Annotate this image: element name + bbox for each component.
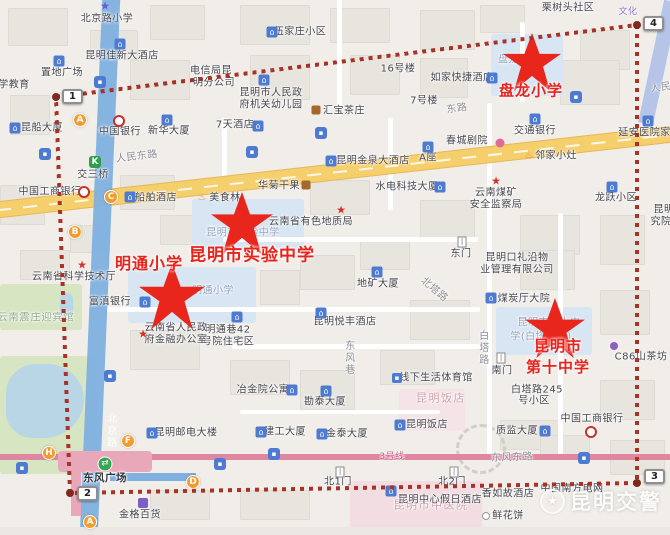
poi-label: 东风巷 [342, 340, 354, 376]
hotel-icon: ⌂ [316, 308, 327, 319]
gate-icon: | [336, 467, 345, 478]
sport-icon: ▪ [392, 373, 402, 383]
street [232, 344, 487, 349]
poi-label: 白塔路245 [511, 384, 563, 396]
street [337, 0, 342, 116]
boundary-marker-4[interactable]: 4 [643, 16, 664, 31]
building-icon: ⌂ [540, 426, 551, 437]
poi-label: 人民东路 [115, 149, 158, 166]
bus-stop-icon[interactable]: ▪ [16, 462, 28, 474]
building-block [520, 215, 580, 255]
poi-label: 昆明市人民政 [240, 87, 303, 99]
street [240, 410, 440, 414]
poi-label: 富滇银行 [89, 296, 131, 308]
station-exit-icon[interactable]: F [121, 434, 135, 448]
poi-label: 明通巷42 [205, 324, 250, 336]
school-name-label: 昆明市第十中学 [526, 335, 590, 377]
building-block [560, 60, 620, 105]
building-icon: ⌂ [10, 123, 21, 134]
poi-label: 3号线 [379, 452, 404, 462]
poi-label: 伍家庄小区 [274, 26, 327, 38]
boundary-marker-3[interactable]: 3 [644, 469, 665, 484]
hotel-icon: ⌂ [487, 73, 498, 84]
boundary-corner-dot [633, 21, 641, 29]
poi-label: 延安医院家属区 [618, 127, 670, 139]
poi-label: 东门 [451, 248, 472, 260]
poi-label: 昆明邮电大楼 [155, 427, 218, 439]
bus-stop-icon[interactable]: ▪ [39, 148, 51, 160]
map-canvas[interactable]: ★ 昆明交警 北京路小学栗树头社区伍家庄小区昆明佳新大酒店置地广场电信局昆明分公… [0, 0, 670, 535]
metro-icon [585, 426, 597, 438]
poi-label: 东风广场 [83, 472, 127, 484]
basket-icon [302, 181, 311, 190]
poi-label: 香如故酒店 [482, 488, 535, 500]
poi-label: 建工大厦 [264, 426, 306, 438]
bag-icon [138, 498, 148, 508]
building-icon: ⌂ [147, 428, 158, 439]
poi-label: 云南煤矿 [475, 187, 517, 199]
poi-label: 昆明口礼沿物 [486, 252, 549, 264]
bus-stop-icon[interactable]: ▪ [246, 146, 258, 158]
building-icon: ⌂ [321, 386, 332, 397]
poi-label: 船舶酒店 [135, 192, 177, 204]
poi-label: C86山茶坊 [615, 351, 668, 363]
poi-label: 金格百货 [119, 509, 161, 521]
poi-label: 美食林 [209, 192, 241, 204]
building-block [150, 5, 205, 40]
bus-stop-icon[interactable]: ▪ [94, 76, 106, 88]
poi-label: 北京路小学 [81, 13, 134, 25]
building-icon: ⌂ [607, 182, 618, 193]
school-name-label: 昆明市实验中学 [189, 241, 315, 266]
poi-label: 汇宝茶庄 [323, 105, 365, 117]
building-block [260, 270, 300, 305]
hotel-icon: ⌂ [326, 156, 337, 167]
building-icon: ⌂ [530, 114, 541, 125]
poi-label: 龙跃小区 [595, 192, 637, 204]
station-exit-icon[interactable]: A [73, 113, 87, 127]
poi-label: 新华大厦 [148, 125, 190, 137]
poi-label: 地矿大厦 [357, 278, 399, 290]
hotel-icon: ⌂ [253, 121, 264, 132]
poi-label: 水电科技大厦 [376, 181, 439, 193]
watermark-text: 昆明交警 [570, 486, 662, 516]
building-icon: ⌂ [140, 297, 151, 308]
hotel-icon: ⌂ [395, 420, 406, 431]
building-block [480, 5, 525, 33]
school-icon: ★ [100, 1, 110, 12]
poi-label: 东风东路 [491, 452, 533, 465]
station-exit-icon[interactable]: D [186, 475, 200, 489]
map-edge-strip [0, 527, 670, 535]
building-icon: ⌂ [162, 115, 173, 126]
poi-label: 7号楼 [410, 95, 438, 107]
poi-label: A座 [419, 152, 437, 164]
poi-label: 云南省科学技术厅 [32, 271, 116, 283]
boundary-marker-1[interactable]: 1 [62, 89, 83, 104]
poi-label: 学教育 [0, 79, 30, 91]
building-icon: ⌂ [317, 429, 328, 440]
hotel-icon: ⌂ [115, 39, 126, 50]
poi-label: 中国工商银行 [561, 413, 624, 425]
building-block [8, 8, 68, 46]
poi-label: 号院住宅区 [202, 336, 255, 348]
poi-label: 煤炭厅大院 [498, 293, 551, 305]
boundary-corner-dot [66, 489, 74, 497]
ring-icon [482, 512, 490, 520]
building-icon: ⌂ [435, 182, 446, 193]
building-block [410, 300, 470, 340]
building-icon: ⌂ [423, 142, 434, 153]
star-icon: ★ [336, 205, 346, 216]
boundary-dash-line [635, 25, 639, 483]
building-icon: ⌂ [259, 75, 270, 86]
poi-label: 华菊干果 [258, 180, 300, 192]
poi-label: 云南省有色地质局 [269, 216, 353, 228]
poi-label: 如家快捷酒店 [431, 72, 494, 84]
poi-label: 冶金院公寓 [237, 384, 290, 396]
poi-label: 春城剧院 [446, 135, 488, 147]
school-name-label: 盘龙小学 [499, 80, 563, 101]
poi-label: 16号楼 [381, 63, 416, 75]
bus-stop-icon[interactable]: ▪ [570, 91, 582, 103]
bank-icon [113, 115, 125, 127]
bus-stop-icon[interactable]: ▪ [268, 448, 280, 460]
building-icon: ⌂ [232, 312, 243, 323]
poi-label: 交通银行 [514, 125, 556, 137]
star-icon: ★ [491, 176, 501, 187]
poi-label: 栗树头社区 [542, 2, 595, 14]
building-icon: ⌂ [643, 116, 654, 127]
poi-label: 安全监察局 [470, 199, 523, 211]
poi-label: 勘泰大厦 [304, 396, 346, 408]
poi-label: 昆明饭店 [406, 419, 448, 431]
bus-stop-icon[interactable]: ▪ [578, 452, 590, 464]
poi-label: 邻家小灶 [535, 150, 577, 162]
poi-label: 府金融办公室 [145, 334, 208, 346]
tea-icon [312, 106, 321, 115]
bus-stop-icon[interactable]: ▪ [214, 458, 226, 470]
station-exit-icon[interactable]: B [68, 225, 82, 239]
poi-label: 鲜花饼 [492, 510, 524, 522]
building-icon: ⌂ [287, 385, 298, 396]
poi-label: 人民 [650, 81, 670, 95]
poi-label: 南门 [492, 365, 513, 377]
poi-label: 府机关幼儿园 [240, 99, 303, 111]
poi-label: 交三桥 [77, 169, 109, 181]
building-icon: ⌂ [54, 56, 65, 67]
poi-label: 北京路 [104, 413, 116, 449]
station-exit-icon[interactable]: A [83, 515, 97, 529]
building-icon: ⌂ [486, 293, 497, 304]
poi-label: 质监大厦 [496, 425, 538, 437]
poi-label: 中国银行 [99, 126, 141, 138]
station-exit-icon[interactable]: H [42, 446, 56, 460]
restaurant-icon: ♨ [525, 151, 534, 161]
transfer-icon: ⇄ [98, 457, 113, 472]
poi-label: 昆明金泉大酒店 [336, 155, 410, 167]
poi-label: 昆明 [654, 204, 670, 216]
boundary-marker-2[interactable]: 2 [77, 486, 98, 501]
building-icon: ⌂ [372, 267, 383, 278]
poi-label: 业管理有限公司 [480, 264, 554, 276]
poi-label: 白塔路 [476, 330, 488, 366]
poi-label: 昆明佳新大酒店 [85, 50, 159, 62]
poi-label: 究院 [651, 216, 670, 228]
poi-label: 东路 [446, 102, 468, 116]
hotel-icon: ⌂ [125, 192, 136, 203]
building-icon: ⌂ [267, 27, 278, 38]
rail-icon: K [89, 156, 101, 168]
gate-icon: | [458, 237, 467, 248]
star-icon: ★ [77, 260, 87, 271]
station-exit-icon[interactable]: C [104, 190, 118, 204]
poi-label: 金泰大厦 [326, 428, 368, 440]
poi-label: 号小区 [518, 395, 550, 407]
gate-icon: | [497, 353, 506, 364]
dotp-icon [610, 342, 618, 350]
flower-icon [496, 139, 505, 148]
building-block [240, 490, 310, 520]
building-block [240, 5, 310, 45]
building-block [360, 240, 410, 270]
poi-label: 置地广场 [41, 67, 83, 79]
building-block [420, 200, 475, 240]
bus-stop-icon[interactable]: ▪ [315, 127, 327, 139]
school-name-label: 明通小学 [115, 250, 183, 274]
poi-label: 昆明中心假日酒店 [398, 494, 482, 506]
poi-label: 文化 [618, 7, 637, 17]
star-icon: ★ [138, 329, 148, 340]
gate-icon: | [450, 467, 459, 478]
traffic-police-badge-icon: ★ [540, 489, 565, 514]
poi-label: 中国工商银行 [19, 186, 82, 198]
building-icon: ⌂ [256, 427, 267, 438]
watermark: ★ 昆明交警 [540, 486, 662, 516]
poi-label: 昆明饭店 [416, 393, 466, 406]
metro-icon [78, 186, 90, 198]
building-block [600, 290, 650, 335]
bus-stop-icon[interactable]: ▪ [104, 370, 116, 382]
poi-label: 7天酒店 [216, 119, 254, 131]
poi-label: 线下生活体育馆 [399, 372, 473, 384]
restaurant-icon: ♨ [198, 193, 207, 203]
